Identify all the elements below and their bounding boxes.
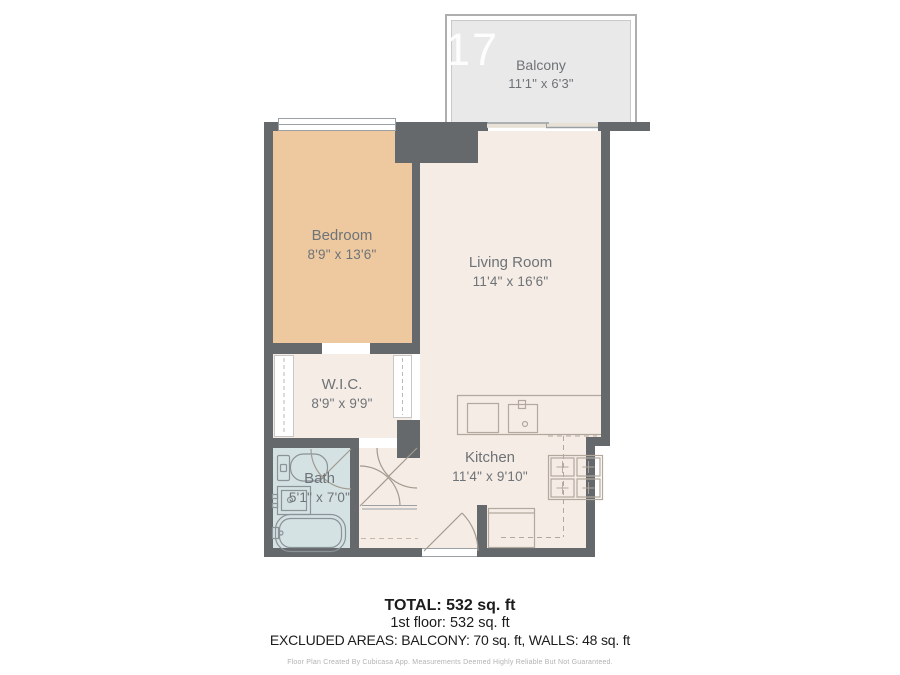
room-dims: 8'9" x 9'9"	[272, 395, 412, 413]
living-room-label: Living Room 11'4" x 16'6"	[420, 253, 601, 291]
fridge-fixture	[489, 509, 535, 548]
bath-label: Bath 5'1" x 7'0"	[267, 469, 372, 507]
balcony-sliding-door	[487, 123, 598, 128]
room-name: Balcony	[451, 56, 631, 75]
kitchen-counter	[458, 396, 602, 435]
dishwasher-fixture	[468, 404, 499, 433]
fixtures-overlay	[0, 0, 900, 675]
floor-area-text: 1st floor: 532 sq. ft	[0, 615, 900, 632]
kitchen-sink-fixture	[509, 401, 538, 433]
kitchen-label: Kitchen 11'4" x 9'10"	[420, 448, 560, 486]
floor-plan: 317 Balcony 11'1" x 6'3" Bedroom 8'9" x …	[0, 0, 900, 675]
room-name: Bedroom	[272, 226, 412, 246]
room-dims: 11'1" x 6'3"	[451, 75, 631, 92]
bedroom-label: Bedroom 8'9" x 13'6"	[272, 226, 412, 264]
bathtub-fixture	[273, 515, 346, 552]
excluded-areas-text: EXCLUDED AREAS: BALCONY: 70 sq. ft, WALL…	[0, 632, 900, 649]
room-dims: 8'9" x 13'6"	[272, 246, 412, 264]
total-area-text: TOTAL: 532 sq. ft	[0, 597, 900, 615]
room-name: Living Room	[420, 253, 601, 273]
room-name: Bath	[267, 469, 372, 489]
area-summary: TOTAL: 532 sq. ft 1st floor: 532 sq. ft …	[0, 597, 900, 666]
room-dims: 11'4" x 9'10"	[420, 468, 560, 486]
room-name: W.I.C.	[272, 375, 412, 395]
room-dims: 11'4" x 16'6"	[420, 273, 601, 291]
disclaimer-text: Floor Plan Created By Cubicasa App. Meas…	[0, 659, 900, 666]
room-dims: 5'1" x 7'0"	[267, 489, 372, 507]
room-name: Kitchen	[420, 448, 560, 468]
entry-door-arc	[424, 513, 478, 551]
wic-label: W.I.C. 8'9" x 9'9"	[272, 375, 412, 413]
hall-closet	[361, 506, 418, 539]
balcony-label: Balcony 11'1" x 6'3"	[451, 56, 631, 92]
